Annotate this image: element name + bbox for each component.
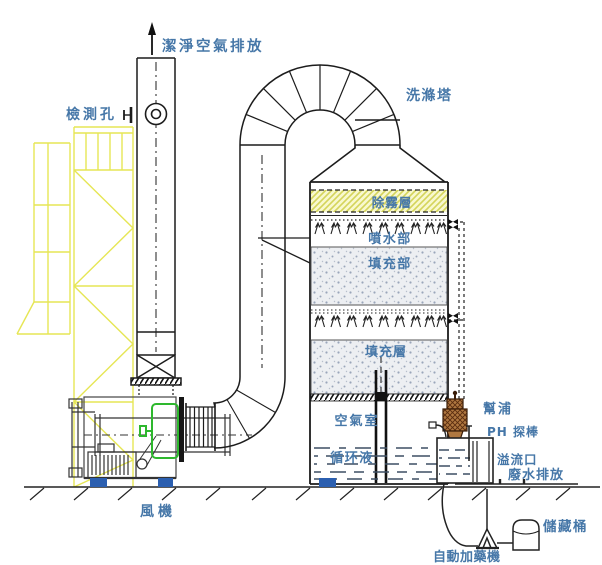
storage-tank-shape <box>513 520 539 550</box>
inspection-port <box>124 104 167 125</box>
mount-pads <box>90 478 336 487</box>
label-overflow-port: 溢流口 <box>497 452 538 467</box>
scrubber-system-diagram: 潔淨空氣排放 檢測孔 洗滌塔 除霧層 噴水部 填充部 填充層 空氣室 循环液 幫… <box>0 0 602 565</box>
fan-base <box>84 478 336 487</box>
process-diagram-canvas: 潔淨空氣排放 檢測孔 洗滌塔 除霧層 噴水部 填充部 填充層 空氣室 循环液 幫… <box>0 0 602 565</box>
spray-header-2 <box>311 310 447 327</box>
clean-air-arrow-icon <box>148 22 156 55</box>
label-wastewater-discharge: 廢水排放 <box>508 467 564 483</box>
tower-top-cone <box>310 145 445 182</box>
fan-inlet-cone <box>140 404 178 458</box>
label-spray-section: 噴水部 <box>368 231 412 247</box>
spray-branch-valves <box>448 219 458 324</box>
label-circulating-liquid: 循环液 <box>330 450 374 466</box>
label-ph-probe: PH 探棒 <box>487 424 539 439</box>
label-auto-dosing-machine: 自動加藥機 <box>433 549 501 565</box>
down-duct <box>240 145 310 373</box>
ground-line <box>24 487 600 500</box>
label-inspection-port: 檢測孔 <box>66 106 117 123</box>
label-scrubber-tower: 洗滌塔 <box>406 87 453 104</box>
label-packing-section: 填充部 <box>368 256 412 272</box>
fan-motor <box>88 436 161 478</box>
fan-assembly <box>69 397 252 478</box>
dosing-system <box>442 484 539 550</box>
label-clean-air-outlet: 潔淨空氣排放 <box>162 37 264 55</box>
label-storage-tank: 儲藏桶 <box>542 518 588 535</box>
label-demister-layer: 除霧層 <box>372 195 413 210</box>
label-packing-layer: 填充層 <box>365 344 407 360</box>
support-structure <box>17 127 133 487</box>
label-pump: 幫浦 <box>483 401 513 417</box>
label-fan: 風機 <box>140 503 176 520</box>
top-u-bend-duct <box>240 65 400 145</box>
packing-bed-1 <box>311 247 447 305</box>
label-air-chamber: 空氣室 <box>334 413 379 429</box>
spray-riser-pipe <box>448 222 464 399</box>
